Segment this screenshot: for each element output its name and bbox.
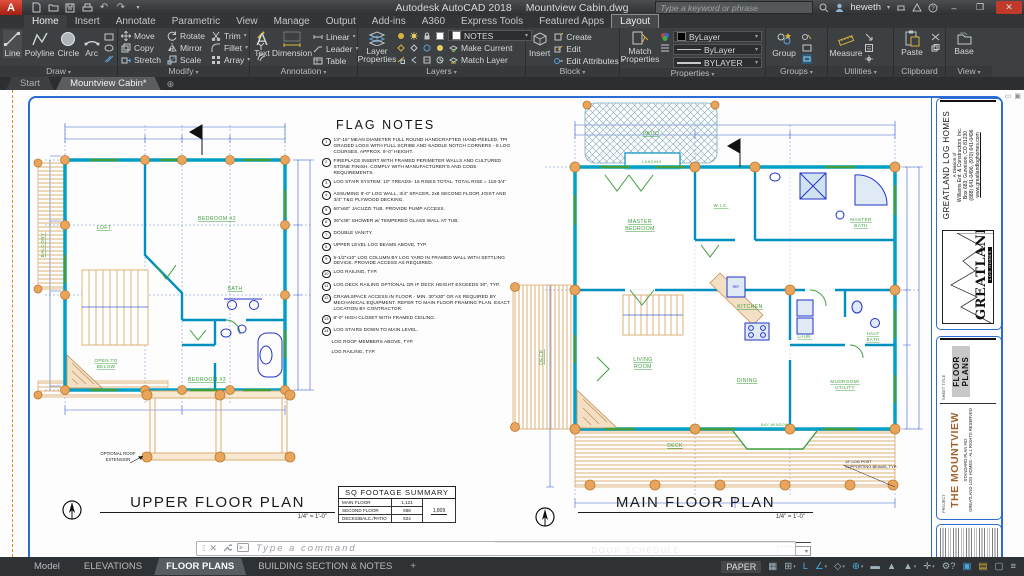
svg-text:PATIO: PATIO — [643, 131, 660, 137]
copy-button[interactable]: Copy — [121, 42, 161, 53]
user-dropdown-icon[interactable]: ▾ — [887, 4, 890, 11]
layer-freeze2-icon[interactable] — [422, 43, 432, 53]
new-file-icon[interactable] — [30, 2, 42, 14]
search-icon[interactable] — [819, 3, 829, 13]
scale-button[interactable]: Scale — [167, 54, 205, 65]
svg-text:W.I.C.: W.I.C. — [714, 203, 729, 208]
layer-select-dropdown[interactable]: NOTES ▾ — [448, 30, 532, 41]
svg-text:LAUN.: LAUN. — [798, 334, 813, 339]
linear-button[interactable]: Linear▾ — [313, 31, 358, 42]
lineweight-icon[interactable]: ▬ — [870, 561, 880, 572]
svg-text:BEDROOM: BEDROOM — [625, 226, 655, 232]
svg-text:LIVING: LIVING — [633, 357, 652, 363]
array-button[interactable]: Array▾ — [211, 54, 250, 65]
linetype-dropdown[interactable]: ByLayer▾ — [673, 44, 762, 55]
edit-block-button[interactable]: Edit — [553, 43, 624, 54]
sq-row-label: SECOND FLOOR — [339, 507, 392, 515]
flag-notes-title: FLAG NOTES — [336, 118, 514, 132]
lineweight-sample — [677, 62, 701, 64]
flag-note: 3 LOG STAIR SYSTEM: 10" TREADS- 15 RISES… — [322, 179, 514, 188]
svg-text:OPTIONAL ROOF: OPTIONAL ROOF — [100, 451, 136, 456]
file-tab-drawing[interactable]: Mountview Cabin* — [56, 77, 161, 90]
sq-row-label: DECKS/BALC./PATIO — [339, 515, 392, 523]
move-icon — [121, 31, 131, 41]
match-layer-icon — [448, 55, 458, 65]
leader-icon — [313, 44, 323, 54]
make-current-button[interactable]: Make Current — [448, 42, 513, 53]
flag-note: 1 13"-16" MEAN DIAMETER FULL ROUND HANDC… — [322, 137, 514, 155]
tab-model[interactable]: Model — [22, 558, 72, 575]
layer-properties-button[interactable]: Layer Properties — [361, 30, 393, 63]
svg-text:MASTER: MASTER — [628, 219, 652, 225]
svg-text:BATH: BATH — [227, 286, 242, 292]
north-arrow-upper — [63, 501, 81, 519]
panel-groups-label[interactable]: Groups▾ — [766, 66, 827, 77]
autodesk-account-icon[interactable] — [912, 3, 922, 12]
tab-a360[interactable]: A360 — [414, 15, 453, 28]
flag-note: 14 LOG STAIRS DOWN TO MAIN LEVEL. — [322, 327, 514, 336]
panel-clipboard: Paste Clipboard — [894, 28, 946, 77]
edit-attributes-button[interactable]: Edit Attributes▾ — [553, 55, 624, 66]
layer-match-icon[interactable] — [396, 55, 406, 65]
flag-note: LOG ROOF MEMBERS ABOVE, TYP. — [322, 339, 514, 346]
restore-button[interactable]: ❐ — [970, 1, 990, 14]
flag-note: 13 8'-0" HIGH CLOSET WITH FRAMED CEILING… — [322, 315, 514, 324]
svg-text:BATH: BATH — [867, 337, 880, 342]
minimize-button[interactable]: – — [944, 1, 964, 14]
tab-parametric[interactable]: Parametric — [164, 15, 228, 28]
layer-on-icon[interactable] — [435, 43, 445, 53]
insert-button[interactable]: Insert — [529, 30, 550, 58]
tab-building-section[interactable]: BUILDING SECTION & NOTES — [246, 558, 404, 575]
svg-text:BAY WINDOW: BAY WINDOW — [761, 423, 789, 427]
layer-prev-icon[interactable] — [409, 55, 419, 65]
new-layout-icon[interactable]: + — [410, 561, 416, 572]
tab-annotate[interactable]: Annotate — [108, 15, 164, 28]
svg-text:A: A — [256, 30, 268, 48]
upper-floor-plan: LOFT BEDROOM #2 BATH BEDROOM #3 OPEN TO … — [30, 105, 322, 535]
panel-annotation-label[interactable]: Annotation▾ — [250, 66, 357, 77]
tab-layout[interactable]: Layout — [612, 15, 658, 28]
tab-express-tools[interactable]: Express Tools — [453, 15, 531, 28]
svg-text:LANDING: LANDING — [642, 160, 662, 164]
grid-icon[interactable]: ▦ — [768, 561, 777, 572]
main-plan-title: MAIN FLOOR PLAN 1/4" = 1'-0" — [578, 494, 813, 520]
status-bar: Model ELEVATIONS FLOOR PLANS BUILDING SE… — [0, 557, 1024, 576]
snap-mode-icon[interactable]: ⊞▾ — [784, 561, 795, 572]
titleblock-project: PROJECT THE MOUNTVIEW STANDARD PLAN #02 … — [940, 338, 996, 516]
sq-footage-summary: SQ FOOTAGE SUMMARY MAIN FLOOR 1,121 1,80… — [338, 486, 456, 523]
main-floor-plan: REF — [505, 95, 935, 545]
panel-draw-label[interactable]: Draw▾ — [0, 66, 117, 77]
layer-color-icon[interactable] — [435, 31, 445, 41]
panel-layers: Layer Properties NOTES ▾ — [358, 28, 526, 77]
rotate-icon — [167, 31, 177, 41]
search-input[interactable] — [655, 1, 813, 14]
mirror-icon — [167, 43, 177, 53]
fillet-button[interactable]: Fillet▾ — [211, 42, 250, 53]
new-drawing-tab-icon[interactable]: ⊕ — [167, 79, 175, 90]
ribbon: Line Polyline Circle Arc Draw▾ — [0, 28, 1024, 77]
linear-icon — [313, 32, 323, 42]
group-selection-toggle-icon[interactable] — [802, 54, 812, 64]
panel-utilities: Measure Utilities▾ — [828, 28, 894, 77]
svg-text:BEDROOM #3: BEDROOM #3 — [188, 377, 226, 383]
tab-manage[interactable]: Manage — [266, 15, 318, 28]
layer-unisolate-icon[interactable] — [409, 43, 419, 53]
qat-dropdown-icon[interactable]: ▾ — [132, 2, 144, 14]
plot-icon[interactable] — [81, 2, 93, 14]
save-icon[interactable] — [64, 2, 76, 14]
leader-button[interactable]: Leader▾ — [313, 43, 358, 54]
title-bar: A ↶ ↷ ▾ Autodesk AutoCAD 2018Mountview C… — [0, 0, 1024, 15]
keep-me-connected-icon[interactable] — [896, 3, 906, 12]
edit-block-icon — [553, 44, 563, 54]
panel-utilities-label[interactable]: Utilities▾ — [828, 66, 893, 77]
upper-plan-title: UPPER FLOOR PLAN 1/4" = 1'-0" — [100, 494, 335, 520]
group-edit-icon[interactable] — [802, 43, 812, 53]
create-block-button[interactable]: Create — [553, 31, 624, 42]
hatch-tool-icon[interactable] — [104, 54, 114, 64]
panel-block-label[interactable]: Block▾ — [526, 66, 619, 77]
flag-note: 8 UPPER LEVEL LOG BEAMS ABOVE, TYP. — [322, 242, 514, 251]
signed-in-user[interactable]: heweth — [850, 2, 881, 13]
flag-note: 6 36"x36" SHOWER w/ TEMPERED GLASS WALL … — [322, 218, 514, 227]
circle-button[interactable]: Circle — [58, 30, 80, 58]
clean-screen-icon[interactable]: ▢ — [994, 561, 1003, 572]
help-icon[interactable]: ? — [928, 3, 938, 13]
svg-text:BEDROOM #2: BEDROOM #2 — [198, 216, 236, 222]
flag-note: LOG RAILING, TYP. — [322, 349, 514, 356]
svg-text:BALCONY: BALCONY — [40, 233, 45, 258]
table-icon — [313, 56, 323, 66]
layer-states-icon[interactable] — [435, 55, 445, 65]
ortho-mode-icon[interactable]: L — [803, 561, 808, 572]
color-swatch — [677, 32, 686, 41]
panel-layers-label[interactable]: Layers▾ — [358, 66, 525, 77]
layer-off-icon[interactable] — [396, 31, 406, 41]
sq-row-label: MAIN FLOOR — [339, 499, 392, 507]
layer-lock-icon[interactable] — [422, 31, 432, 41]
panel-draw: Line Polyline Circle Arc Draw▾ — [0, 28, 118, 77]
svg-text:SUPPORTING BEAMS, TYP.: SUPPORTING BEAMS, TYP. — [845, 464, 897, 469]
quick-select-icon[interactable] — [864, 32, 874, 42]
flag-note: 9 5-1/2"x10" LOG COLUMN BY LOG YARD IN F… — [322, 255, 514, 267]
id-point-icon[interactable] — [864, 54, 874, 64]
cut-icon[interactable] — [930, 32, 940, 42]
tab-addins[interactable]: Add-ins — [364, 15, 414, 28]
panel-view: Base View▾ — [946, 28, 992, 77]
move-button[interactable]: Move — [121, 30, 161, 41]
user-avatar-icon — [835, 3, 844, 13]
svg-text:LOFT: LOFT — [97, 225, 112, 231]
flag-note: 4 ASSUMING 9'-0" LOG WALL, 3/4" SPACER, … — [322, 191, 514, 203]
match-properties-button[interactable]: Match Properties — [623, 30, 657, 63]
vp-restore-icon[interactable]: ▣ — [1014, 92, 1021, 100]
scale-icon — [167, 55, 177, 65]
make-current-icon — [448, 43, 458, 53]
titleblock-fine-print — [940, 528, 998, 557]
tab-output[interactable]: Output — [318, 15, 364, 28]
arc-button[interactable]: Arc — [82, 30, 101, 58]
layer-walk-icon[interactable] — [422, 55, 432, 65]
group-button[interactable]: Group — [769, 30, 799, 58]
command-customize-icon[interactable] — [222, 543, 232, 555]
open-file-icon[interactable] — [47, 2, 59, 14]
command-close-icon[interactable]: ✕ — [209, 543, 217, 554]
flag-note: 11 LOG DECK RAILING OPTIONAL OR IF DECK … — [322, 282, 514, 291]
properties-list-icon[interactable] — [660, 43, 670, 53]
close-button[interactable]: ✕ — [996, 1, 1022, 14]
annotation-visibility-icon[interactable]: ▲ — [887, 561, 896, 572]
line-button[interactable]: Line — [3, 30, 22, 58]
fillet-icon — [211, 43, 221, 53]
paper-space-toggle[interactable]: PAPER — [721, 561, 761, 573]
linetype-sample — [677, 49, 701, 50]
file-tab-bar: Start Mountview Cabin* ⊕ — [0, 77, 1024, 90]
stretch-button[interactable]: Stretch — [121, 54, 161, 65]
polar-tracking-icon[interactable]: ∠▾ — [815, 561, 827, 572]
sq-footage-title: SQ FOOTAGE SUMMARY — [339, 487, 456, 499]
svg-text:EXTENSION: EXTENSION — [106, 457, 131, 462]
copy-clip-icon[interactable] — [930, 43, 940, 53]
flag-note: 10 LOG RAILING, TYP. — [322, 269, 514, 278]
object-snap-icon[interactable]: ⊕▾ — [852, 561, 863, 572]
color-wheel-icon[interactable] — [660, 32, 670, 42]
command-line: ⁞⁞ ✕ — [196, 541, 796, 556]
create-block-icon — [553, 32, 563, 42]
svg-text:BATH: BATH — [854, 223, 868, 228]
file-tab-start[interactable]: Start — [6, 77, 54, 90]
panel-view-label[interactable]: View▾ — [946, 66, 992, 77]
tab-elevations[interactable]: ELEVATIONS — [72, 558, 154, 575]
drawing-canvas[interactable]: ▭ ▣ — [0, 90, 1024, 557]
tab-home[interactable]: Home — [24, 15, 67, 28]
autoscale-icon[interactable]: ▲▾ — [903, 561, 916, 572]
svg-text:KITCHEN: KITCHEN — [737, 304, 763, 310]
svg-text:REF: REF — [733, 285, 740, 289]
panel-annotation: A Text Dimension Linear▾ Leader▾ Table A… — [250, 28, 358, 77]
sq-total: 1,809 — [423, 499, 456, 523]
ellipse-tool-icon[interactable] — [104, 43, 114, 53]
autocad-window: A ↶ ↷ ▾ Autodesk AutoCAD 2018Mountview C… — [0, 0, 1024, 576]
viewport-boundary — [12, 90, 13, 557]
vp-minimize-icon[interactable]: ▭ — [1005, 92, 1012, 100]
autocad-app-menu[interactable]: A — [0, 0, 22, 15]
isolate-objects-icon[interactable]: ▤ — [978, 561, 987, 572]
quick-access-toolbar: ↶ ↷ ▾ — [30, 2, 144, 14]
base-button[interactable]: Base — [949, 30, 979, 56]
polyline-button[interactable]: Polyline — [25, 30, 55, 58]
layer-isolate-icon[interactable] — [396, 43, 406, 53]
object-color-dropdown[interactable]: ByLayer▾ — [673, 31, 762, 42]
measure-button[interactable]: Measure — [831, 30, 861, 58]
tab-insert[interactable]: Insert — [67, 15, 108, 28]
trim-icon — [211, 31, 221, 41]
table-button[interactable]: Table — [313, 55, 358, 66]
dimension-button[interactable]: Dimension — [274, 30, 310, 58]
ungroup-icon[interactable] — [802, 32, 812, 42]
tab-floor-plans[interactable]: FLOOR PLANS — [154, 558, 246, 575]
mirror-button[interactable]: Mirror — [167, 42, 205, 53]
svg-text:BELOW: BELOW — [97, 364, 116, 369]
command-grip[interactable]: ⁞⁞ — [202, 544, 204, 553]
panel-block: Insert Create Edit Edit Attributes▾ Bloc… — [526, 28, 620, 77]
tab-view[interactable]: View — [228, 15, 266, 28]
array-icon — [211, 55, 221, 65]
text-button[interactable]: A Text — [253, 30, 271, 58]
svg-text:DECK: DECK — [667, 443, 683, 449]
layer-freeze-icon[interactable] — [409, 31, 419, 41]
layer-color-swatch — [452, 31, 461, 40]
edit-attributes-icon — [553, 56, 563, 66]
svg-text:DINING: DINING — [737, 378, 758, 384]
annotation-monitor-icon[interactable]: ▣ — [963, 561, 972, 572]
flag-note: 12 CRAWLSPACE ACCESS IN FLOOR - MIN. 30"… — [322, 294, 514, 312]
greatland-logo: GREATLAND LOG HOMES — [942, 230, 994, 324]
svg-text:DECK: DECK — [539, 349, 545, 365]
svg-text:UTILITY: UTILITY — [835, 385, 855, 390]
rotate-button[interactable]: Rotate — [167, 30, 205, 41]
stretch-icon — [121, 55, 131, 65]
panel-modify: Move Copy Stretch Rotate Mirror Scale Tr… — [118, 28, 250, 77]
flag-note: 5 60"x60" JACUZZI TUB. PROVIDE PUMP ACCE… — [322, 206, 514, 215]
lineweight-dropdown[interactable]: BYLAYER▾ — [673, 57, 762, 68]
copy-icon — [121, 43, 131, 53]
flag-note: 7 DOUBLE VANITY. — [322, 230, 514, 239]
svg-text:OPEN TO: OPEN TO — [94, 358, 117, 363]
match-layer-button[interactable]: Match Layer — [448, 54, 508, 65]
paste-button[interactable]: Paste — [897, 30, 927, 57]
command-prompt-icon — [237, 543, 249, 554]
panel-properties: Match Properties ByLayer▾ ByLayer▾ BYLAY… — [620, 28, 766, 77]
panel-clipboard-label[interactable]: Clipboard — [894, 66, 945, 77]
redo-icon[interactable]: ↷ — [115, 2, 127, 14]
annotation-scale-icon[interactable]: ✛▾ — [923, 561, 934, 572]
svg-text:ROOM: ROOM — [634, 364, 652, 370]
svg-text:MASTER: MASTER — [850, 217, 872, 222]
isometric-drafting-icon[interactable]: ◇▾ — [834, 561, 845, 572]
flag-notes: FLAG NOTES 1 13"-16" MEAN DIAMETER FULL … — [322, 118, 514, 359]
tab-featured-apps[interactable]: Featured Apps — [531, 15, 612, 28]
titleblock-company: GREATLAND LOG HOMES GREATLAND LOG HOMES … — [940, 100, 996, 326]
panel-modify-label[interactable]: Modify▾ — [118, 66, 249, 77]
quick-calc-icon[interactable] — [864, 43, 874, 53]
svg-text:HALF: HALF — [867, 331, 880, 336]
ribbon-tab-bar: Home Insert Annotate Parametric View Man… — [0, 15, 1024, 28]
workspace-switching-icon[interactable]: ⚙? — [942, 561, 956, 572]
customization-icon[interactable]: ≡ — [1010, 561, 1016, 572]
viewport-controls: ▭ ▣ — [1005, 92, 1021, 100]
panel-groups: Group Groups▾ — [766, 28, 828, 77]
flag-note: 2 FIREPLACE INSERT WITH FRAMED PERIMETER… — [322, 158, 514, 176]
svg-text:MUDROOM/: MUDROOM/ — [830, 379, 860, 384]
trim-button[interactable]: Trim▾ — [211, 30, 250, 41]
north-arrow-main — [536, 508, 554, 526]
undo-icon[interactable]: ↶ — [98, 2, 110, 14]
command-input[interactable] — [254, 542, 790, 555]
rectangle-tool-icon[interactable] — [104, 32, 114, 42]
